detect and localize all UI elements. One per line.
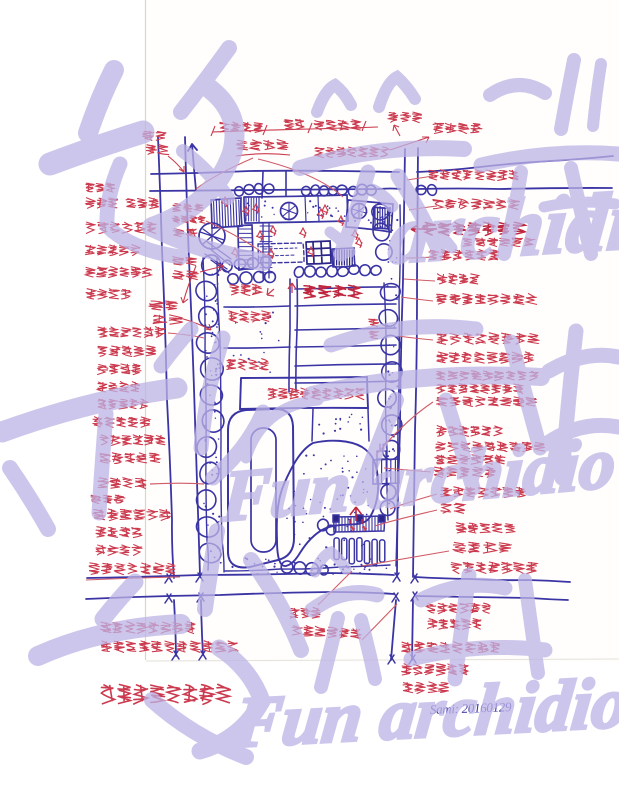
svg-text:archidio: archidio bbox=[385, 172, 619, 281]
